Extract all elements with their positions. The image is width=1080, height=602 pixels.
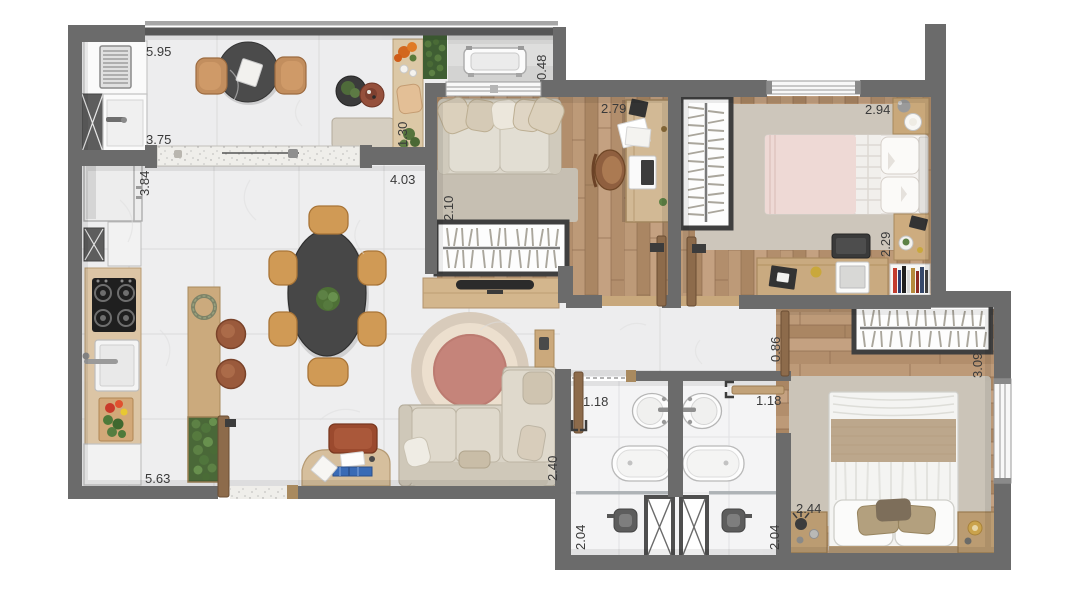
svg-text:3.84: 3.84 [137,171,152,196]
svg-text:0.48: 0.48 [534,55,549,80]
svg-text:1.18: 1.18 [756,393,781,408]
svg-text:2.04: 2.04 [767,525,782,550]
svg-text:5.95: 5.95 [146,44,171,59]
svg-text:3.09: 3.09 [970,353,985,378]
svg-text:2.04: 2.04 [573,525,588,550]
svg-text:5.63: 5.63 [145,471,170,486]
svg-text:4.03: 4.03 [390,172,415,187]
svg-text:0.86: 0.86 [768,337,783,362]
svg-text:2.94: 2.94 [865,102,890,117]
svg-text:2.79: 2.79 [601,101,626,116]
svg-text:2.40: 2.40 [545,456,560,481]
svg-text:2.29: 2.29 [878,232,893,257]
svg-text:2.10: 2.10 [441,196,456,221]
svg-text:2.44: 2.44 [796,501,821,516]
svg-text:3.75: 3.75 [146,132,171,147]
svg-text:1.18: 1.18 [583,394,608,409]
svg-text:1.30: 1.30 [395,122,410,147]
